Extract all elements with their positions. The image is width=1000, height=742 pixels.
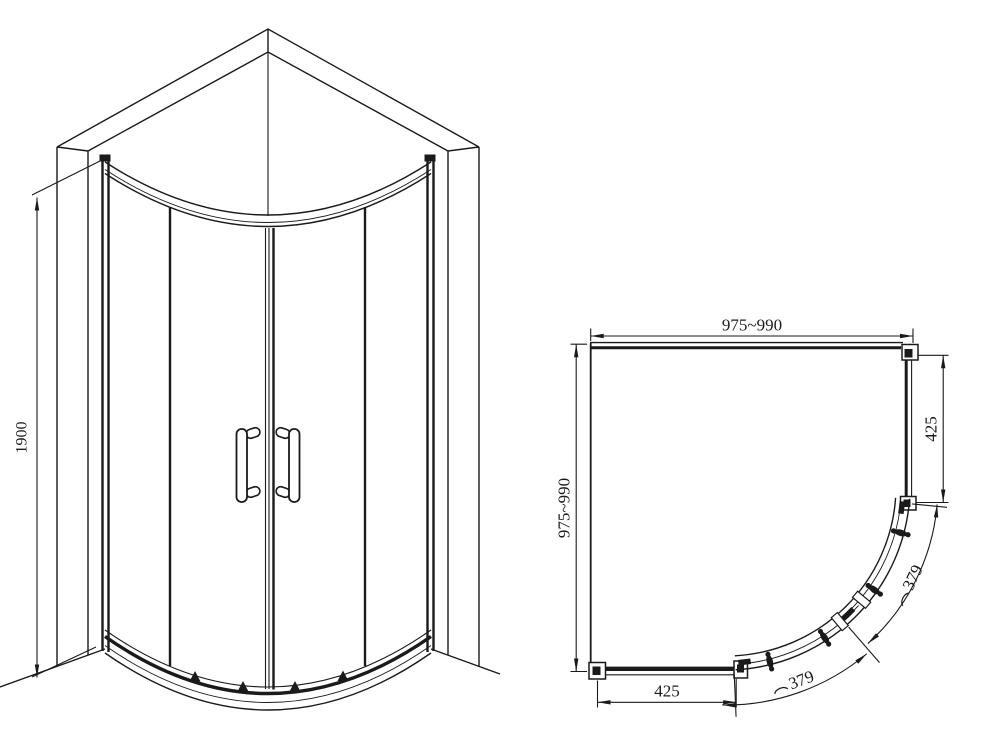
arc-length-symbol-icon: [900, 592, 909, 606]
wall-outer-verticals: [57, 147, 479, 666]
bottom-rail-track: [105, 637, 431, 694]
door-stile-top: [901, 501, 903, 513]
bottom-rail-top: [105, 630, 431, 687]
bottom-panel-dimension-label: 425: [654, 682, 680, 701]
frame-left-profile: [103, 158, 109, 652]
door-stile-bottom: [738, 661, 750, 662]
wall-floor-edges: [0, 649, 500, 687]
left-door-handle[interactable]: [237, 427, 262, 502]
frame-right-cap: [425, 155, 436, 162]
plan-view: 975~990 975~990 425 425 379: [555, 316, 949, 717]
depth-dimension-label: 975~990: [555, 478, 574, 538]
arc-dimension-label-group: 379: [891, 562, 927, 609]
plan-roller-4: [764, 651, 775, 672]
dimension-bottom-panel: 425: [598, 679, 737, 708]
extension-line-bottom: [32, 647, 96, 677]
glass-panels: [170, 207, 365, 690]
plan-fixed-panel-bottom: [606, 661, 748, 678]
lower-arc-dimension-label: 379: [786, 667, 817, 694]
drawing-svg: 1900: [0, 0, 1000, 742]
bottom-rail-outer: [105, 653, 431, 710]
plan-fixed-panel-right: [901, 360, 917, 510]
plan-corner-profile-bottom-left: [589, 663, 606, 680]
roller-carriage-1: [853, 591, 871, 608]
dimension-width-top: 975~990: [591, 316, 913, 344]
extension-line-top: [32, 161, 100, 195]
corner-profile-section: [905, 349, 913, 358]
dimension-arc-upper: 379: [849, 504, 947, 663]
height-dimension-label: 1900: [14, 422, 31, 454]
handle-bar[interactable]: [237, 429, 248, 502]
perspective-view: 1900: [0, 29, 500, 710]
arc-length-symbol-icon: [774, 686, 788, 694]
technical-drawing-canvas: 1900: [0, 0, 1000, 742]
right-panel-dimension-label: 425: [922, 416, 941, 442]
dimension-depth-left: 975~990: [555, 344, 588, 671]
width-dimension-label: 975~990: [722, 316, 782, 335]
plan-roller-1: [890, 527, 911, 538]
walls: [0, 29, 500, 687]
plan-corner-profile-top-right: [902, 345, 918, 361]
plan-sliding-doors[interactable]: [735, 498, 912, 672]
dimension-right-panel: 425: [917, 355, 949, 502]
corner-profile-section: [593, 667, 601, 676]
radial-extension-lines: [849, 504, 947, 663]
bottom-panel-end-section: [737, 665, 744, 673]
handle-bar[interactable]: [289, 429, 300, 502]
plan-walls: [590, 343, 903, 663]
door-arc-inner: [735, 498, 896, 656]
enclosure-frame: [100, 155, 436, 711]
door-arc-outer: [736, 499, 910, 670]
right-door-handle[interactable]: [275, 427, 300, 502]
door-stile-middle: [842, 609, 853, 620]
frame-left-cap: [100, 155, 111, 162]
frame-right-profile: [428, 158, 434, 652]
